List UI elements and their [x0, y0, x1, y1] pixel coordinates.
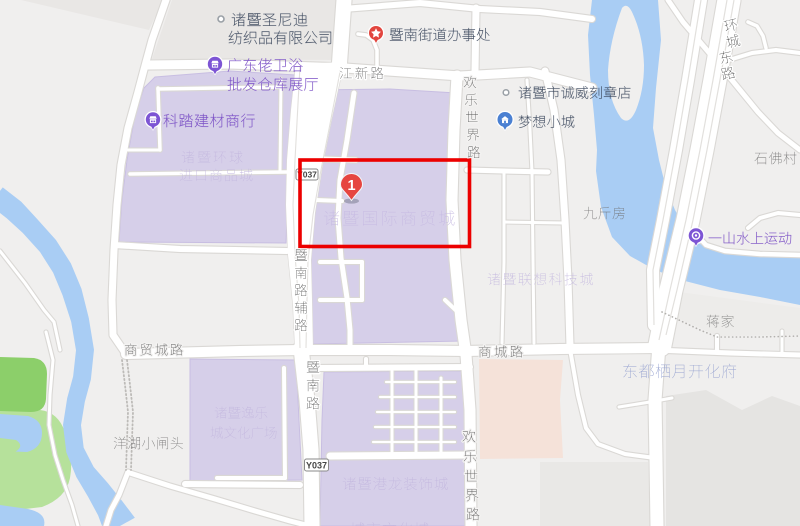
svg-text:1: 1 [347, 178, 355, 194]
svg-text:Y037: Y037 [306, 461, 327, 471]
